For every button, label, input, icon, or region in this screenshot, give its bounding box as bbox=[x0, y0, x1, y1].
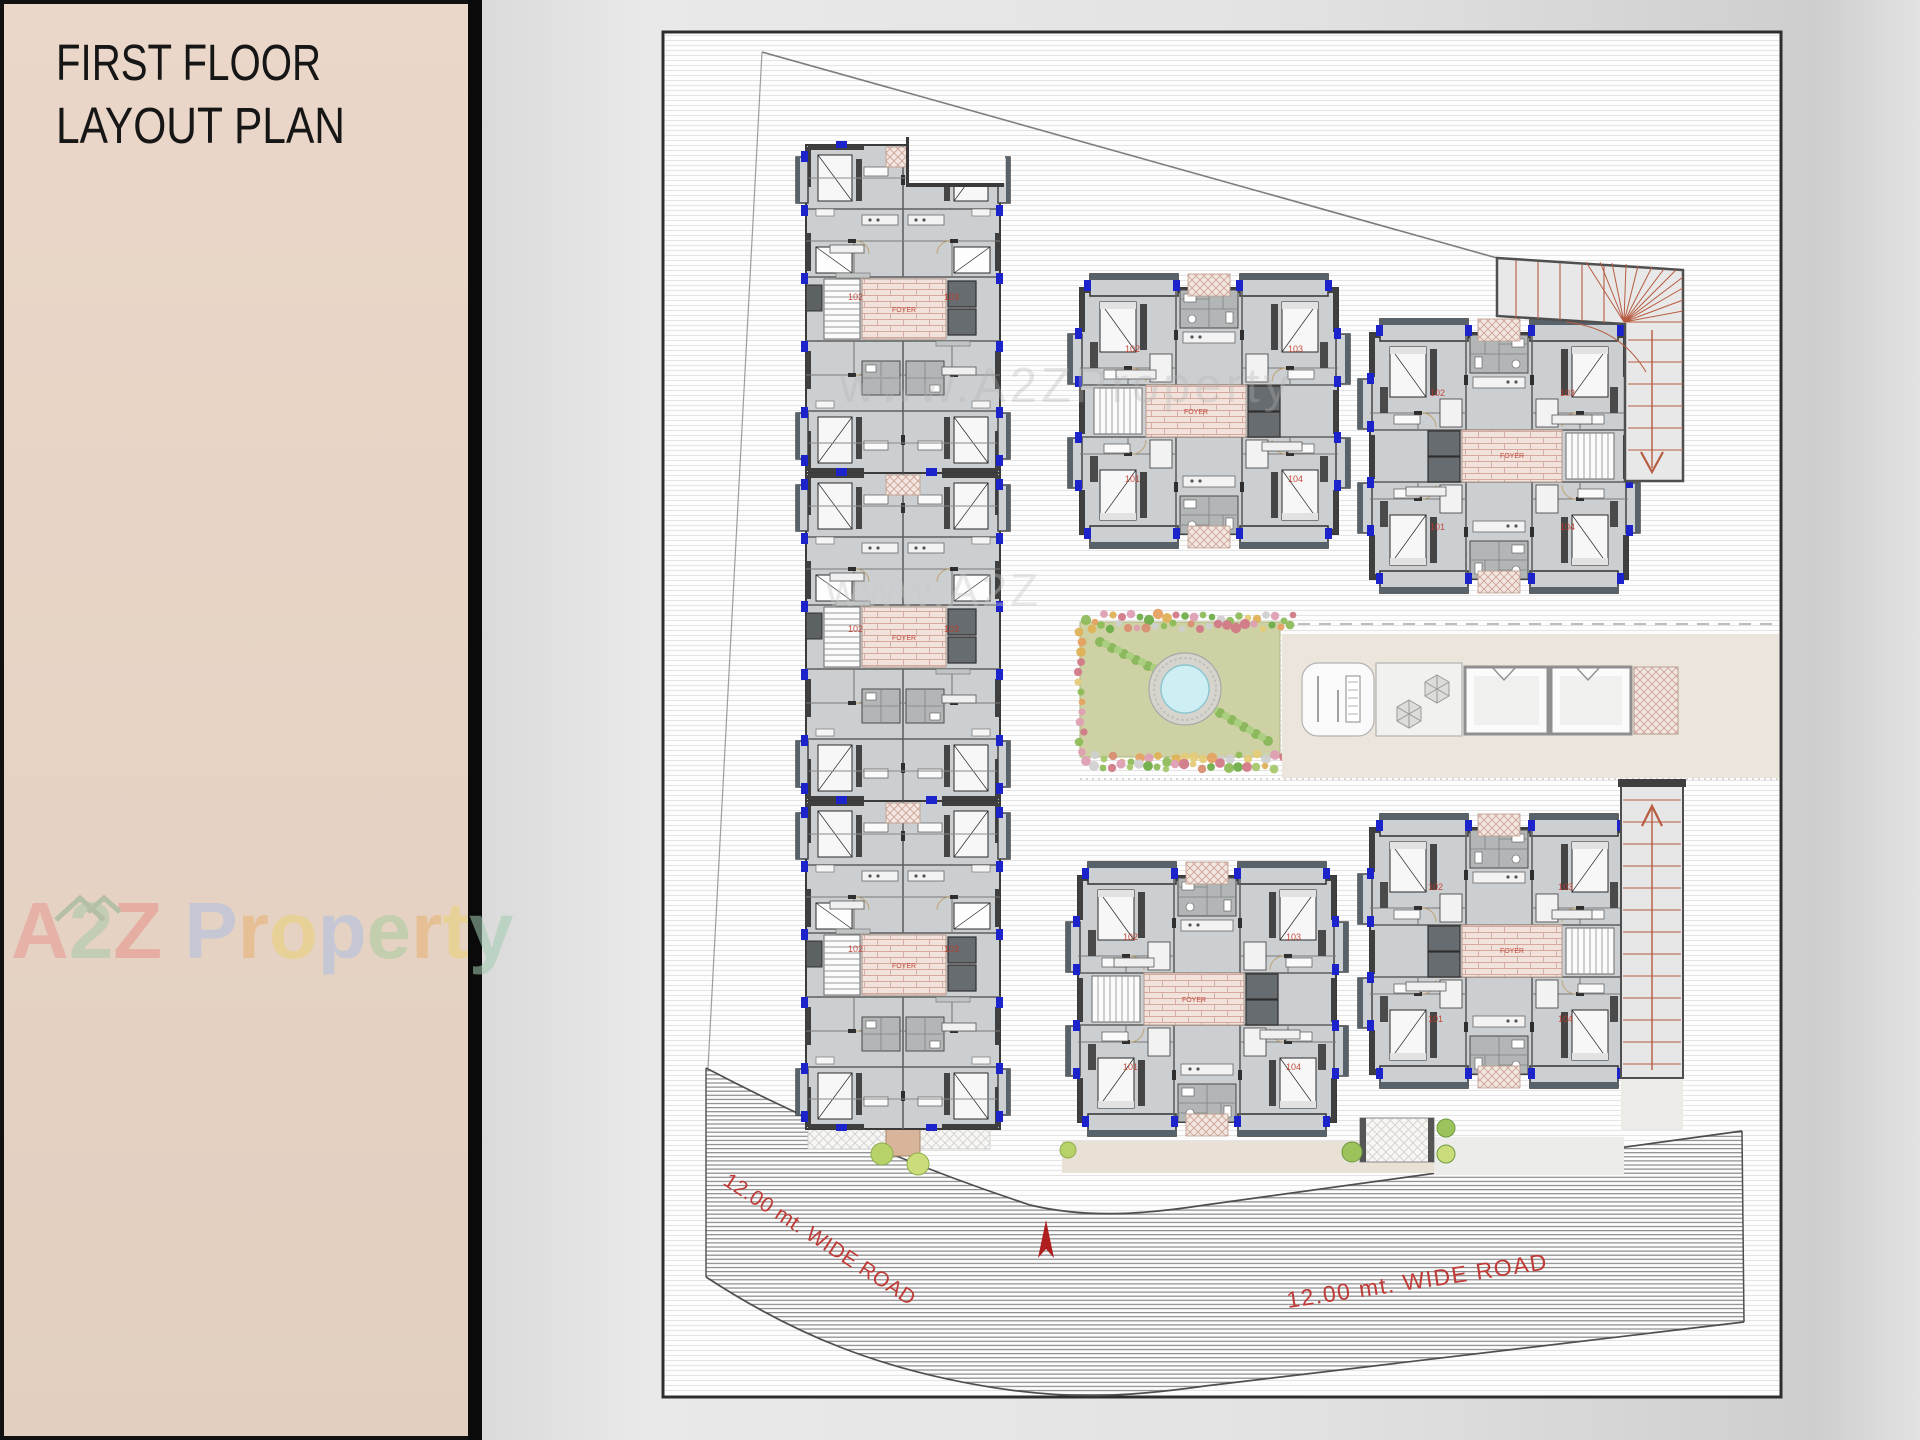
svg-text:101: 101 bbox=[1428, 1014, 1443, 1024]
svg-text:FOYER: FOYER bbox=[1500, 453, 1524, 460]
svg-text:103: 103 bbox=[944, 624, 959, 634]
svg-text:102: 102 bbox=[1123, 932, 1138, 942]
svg-text:102: 102 bbox=[848, 624, 863, 634]
svg-text:102: 102 bbox=[848, 292, 863, 302]
svg-text:103: 103 bbox=[1286, 932, 1301, 942]
svg-text:103: 103 bbox=[944, 944, 959, 954]
svg-text:101: 101 bbox=[1125, 474, 1140, 484]
svg-text:103: 103 bbox=[1288, 344, 1303, 354]
svg-text:FOYER: FOYER bbox=[1182, 997, 1206, 1004]
svg-text:102: 102 bbox=[848, 944, 863, 954]
svg-text:104: 104 bbox=[1288, 474, 1303, 484]
svg-text:A2Z Property: A2Z Property bbox=[11, 886, 514, 975]
svg-text:104: 104 bbox=[1286, 1062, 1301, 1072]
svg-text:103: 103 bbox=[944, 292, 959, 302]
svg-text:101: 101 bbox=[1123, 1062, 1138, 1072]
svg-text:102: 102 bbox=[1125, 344, 1140, 354]
svg-text:www.A2Z: www.A2Z bbox=[825, 564, 1041, 616]
svg-text:102: 102 bbox=[1428, 882, 1443, 892]
svg-text:102: 102 bbox=[1430, 388, 1445, 398]
svg-text:FOYER: FOYER bbox=[892, 635, 916, 642]
svg-text:FOYER: FOYER bbox=[892, 963, 916, 970]
svg-text:103: 103 bbox=[1560, 388, 1575, 398]
svg-text:101: 101 bbox=[1430, 522, 1445, 532]
svg-text:104: 104 bbox=[1560, 522, 1575, 532]
svg-text:103: 103 bbox=[1558, 882, 1573, 892]
svg-text:104: 104 bbox=[1558, 1014, 1573, 1024]
svg-text:FOYER: FOYER bbox=[892, 307, 916, 314]
svg-text:FIRST FLOOR: FIRST FLOOR bbox=[56, 34, 321, 91]
svg-text:www.A2ZProperty: www.A2ZProperty bbox=[839, 359, 1292, 413]
svg-text:FOYER: FOYER bbox=[1500, 948, 1524, 955]
svg-text:LAYOUT PLAN: LAYOUT PLAN bbox=[56, 97, 345, 154]
